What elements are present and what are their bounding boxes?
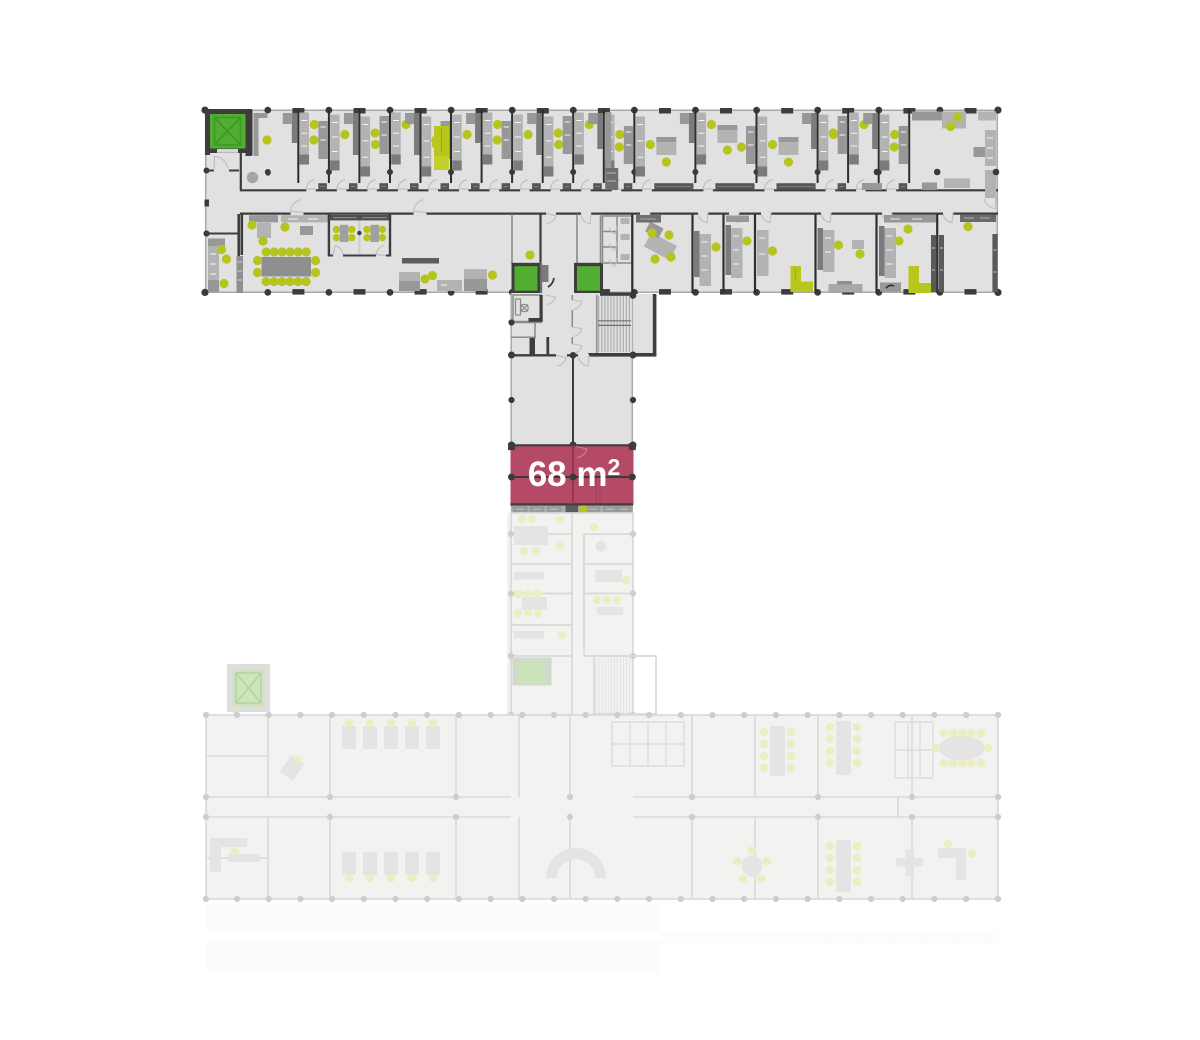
svg-text:68 m2: 68 m2 bbox=[528, 454, 621, 494]
